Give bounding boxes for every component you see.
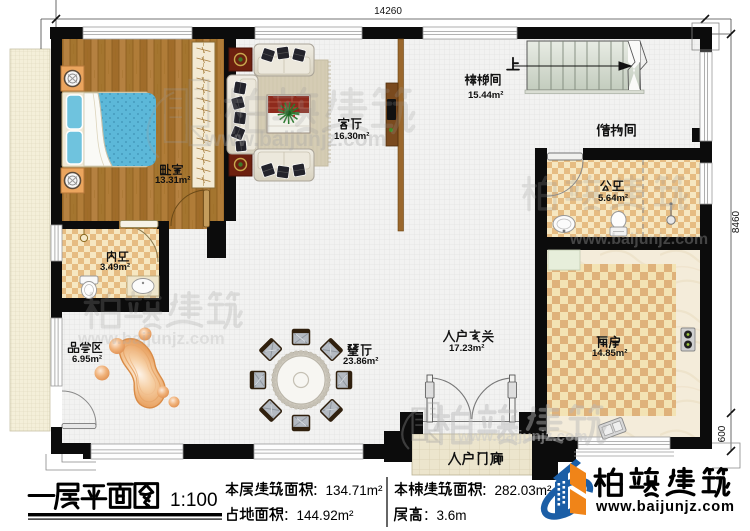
svg-text:17.23m²: 17.23m²	[449, 343, 484, 354]
svg-text:15.44m²: 15.44m²	[468, 90, 503, 101]
svg-text:www.baijunjz.com: www.baijunjz.com	[569, 231, 708, 248]
svg-text:6.95m²: 6.95m²	[72, 354, 102, 365]
svg-text:13.31m²: 13.31m²	[155, 175, 190, 186]
svg-text:www.baijunjz.com: www.baijunjz.com	[595, 499, 735, 515]
svg-text:16.30m²: 16.30m²	[334, 131, 369, 142]
svg-text:5.64m²: 5.64m²	[598, 193, 628, 204]
svg-text:1:100: 1:100	[170, 490, 218, 511]
svg-text:23.86m²: 23.86m²	[343, 356, 378, 367]
svg-text:3.49m²: 3.49m²	[100, 262, 130, 273]
svg-text:：3.6m: ：3.6m	[423, 508, 467, 523]
svg-text:8460: 8460	[731, 210, 742, 233]
svg-text:：282.03m²: ：282.03m²	[481, 483, 552, 498]
svg-text:：134.71m²: ：134.71m²	[312, 483, 383, 498]
svg-text:：144.92m²: ：144.92m²	[283, 508, 354, 523]
svg-text:600: 600	[717, 425, 728, 442]
svg-text:14260: 14260	[374, 6, 402, 17]
svg-text:14.85m²: 14.85m²	[592, 348, 627, 359]
svg-text:www.baijunjz.com: www.baijunjz.com	[457, 428, 587, 445]
